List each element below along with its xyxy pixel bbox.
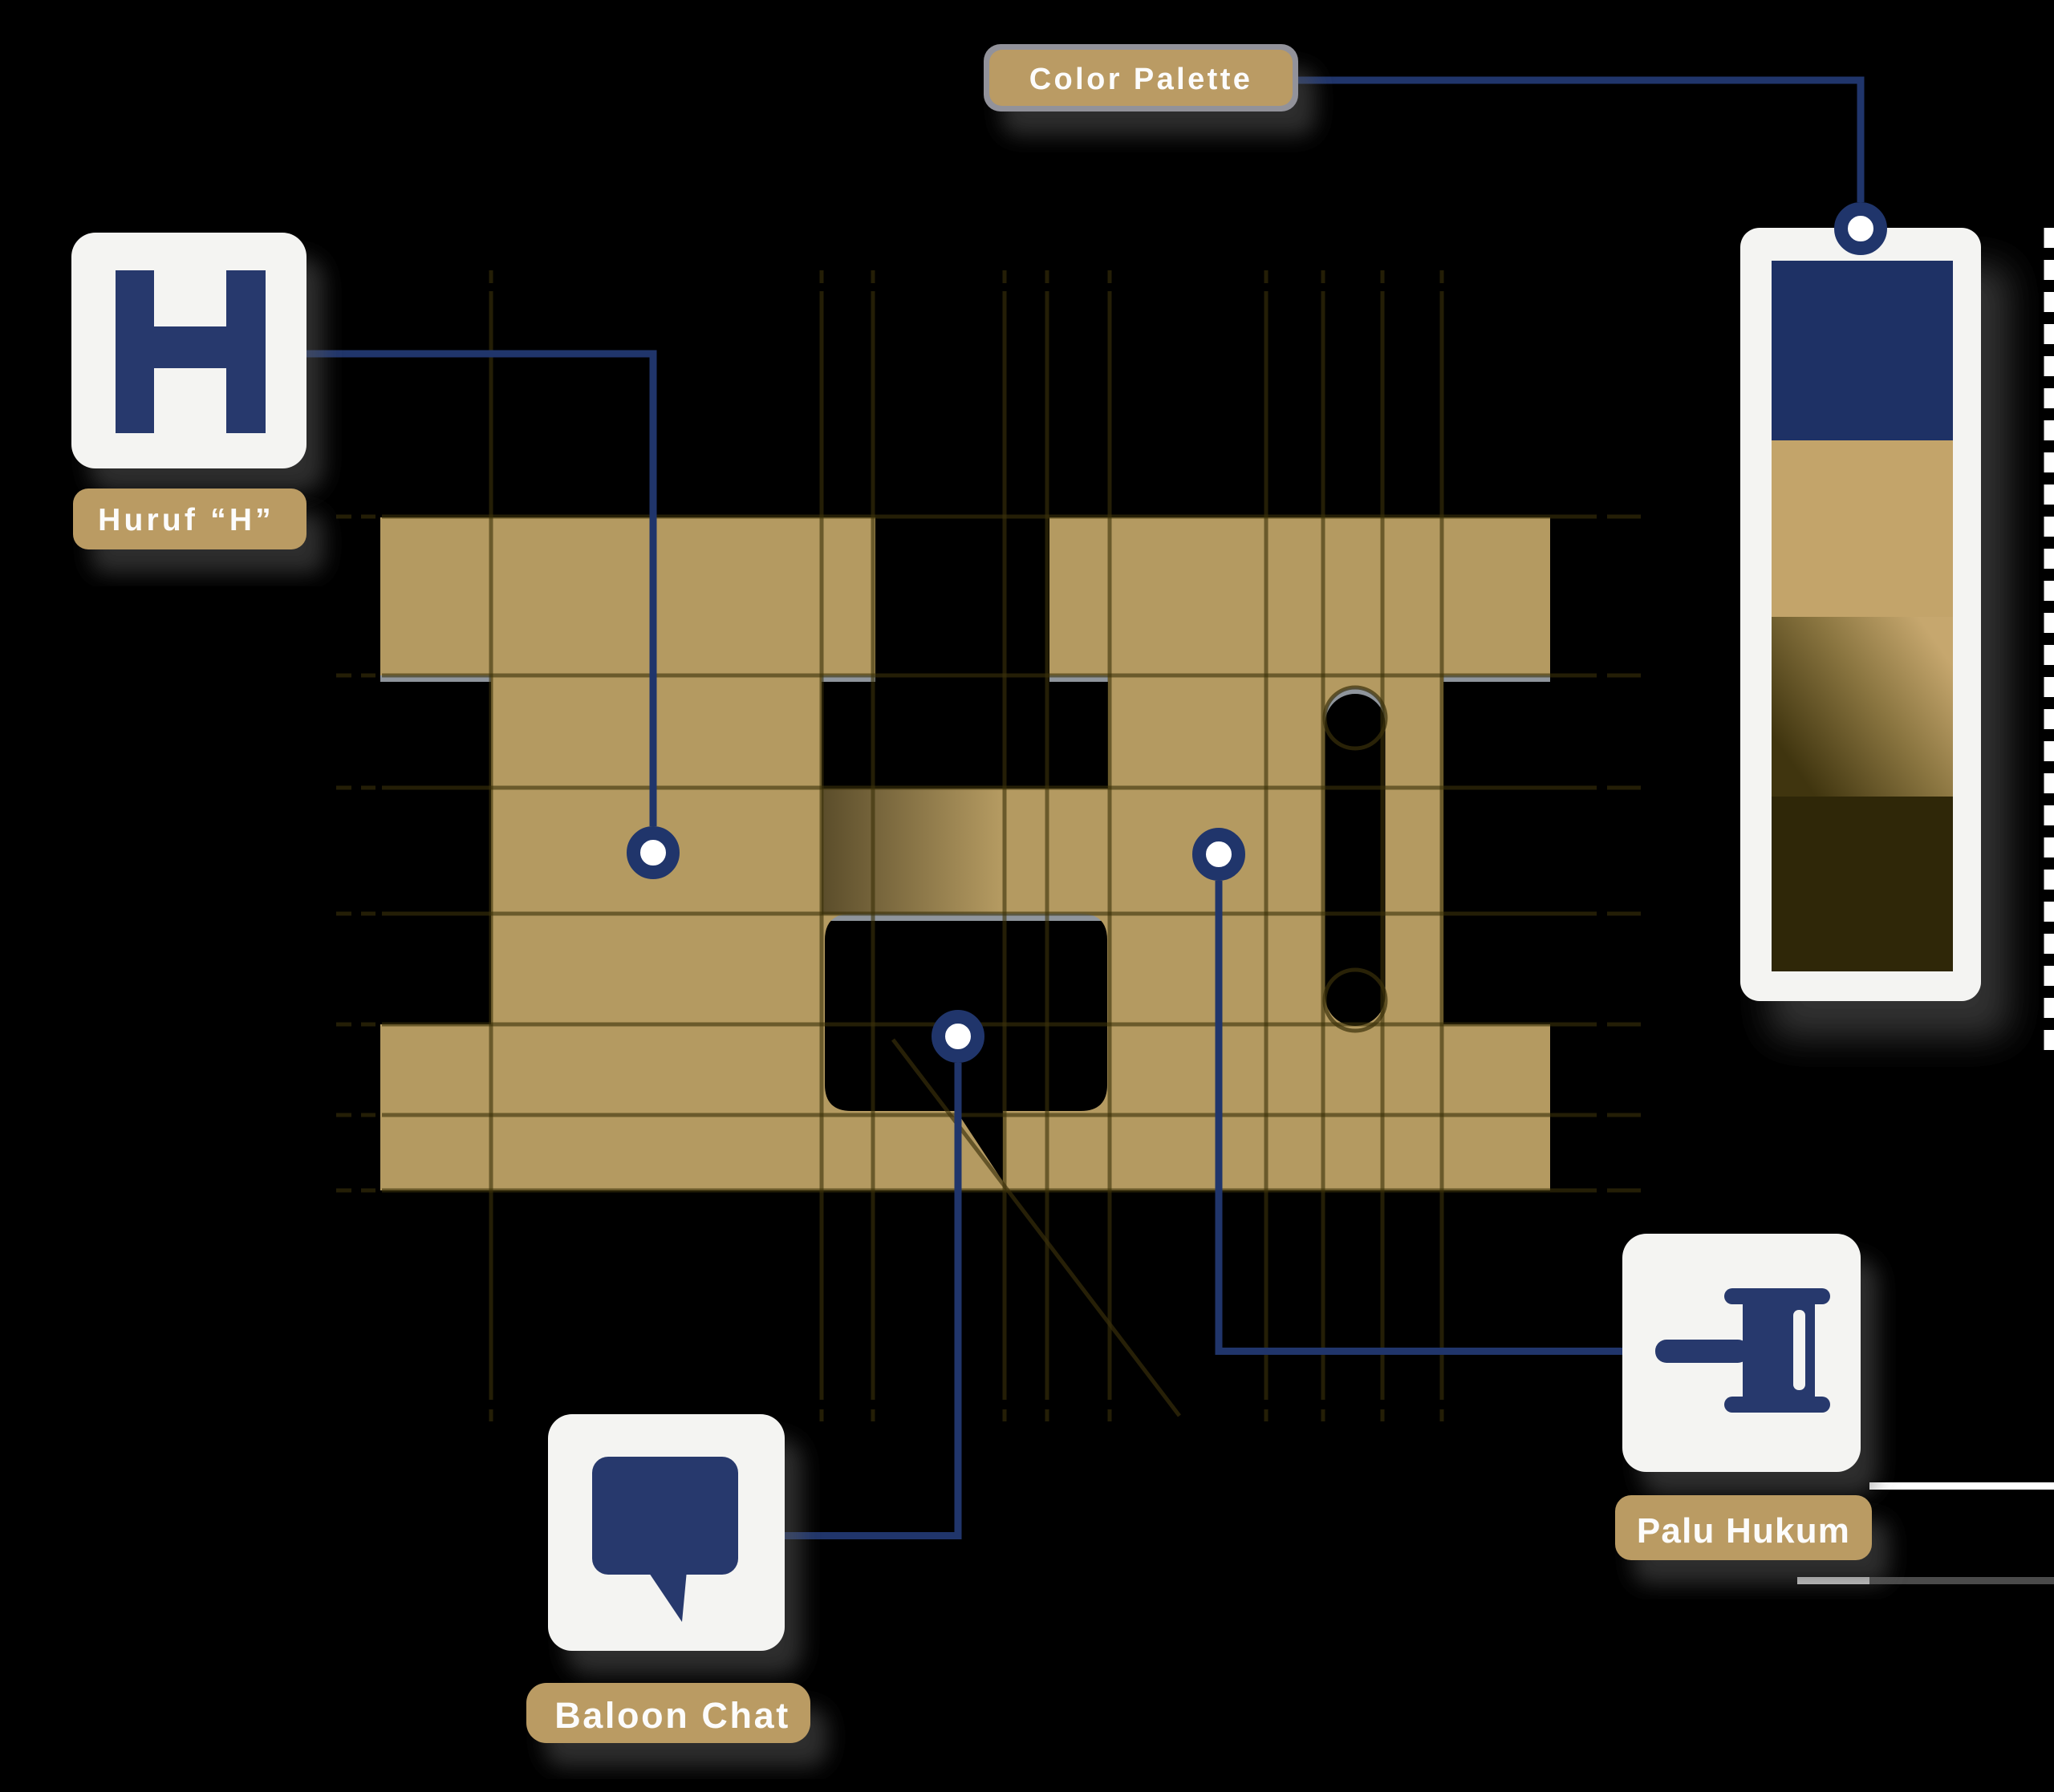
svg-text:Palu Hukum: Palu Hukum: [1637, 1511, 1850, 1551]
svg-text:Huruf “H”: Huruf “H”: [98, 503, 274, 537]
svg-text:Color Palette: Color Palette: [1029, 63, 1253, 96]
svg-text:Baloon Chat: Baloon Chat: [554, 1695, 790, 1736]
